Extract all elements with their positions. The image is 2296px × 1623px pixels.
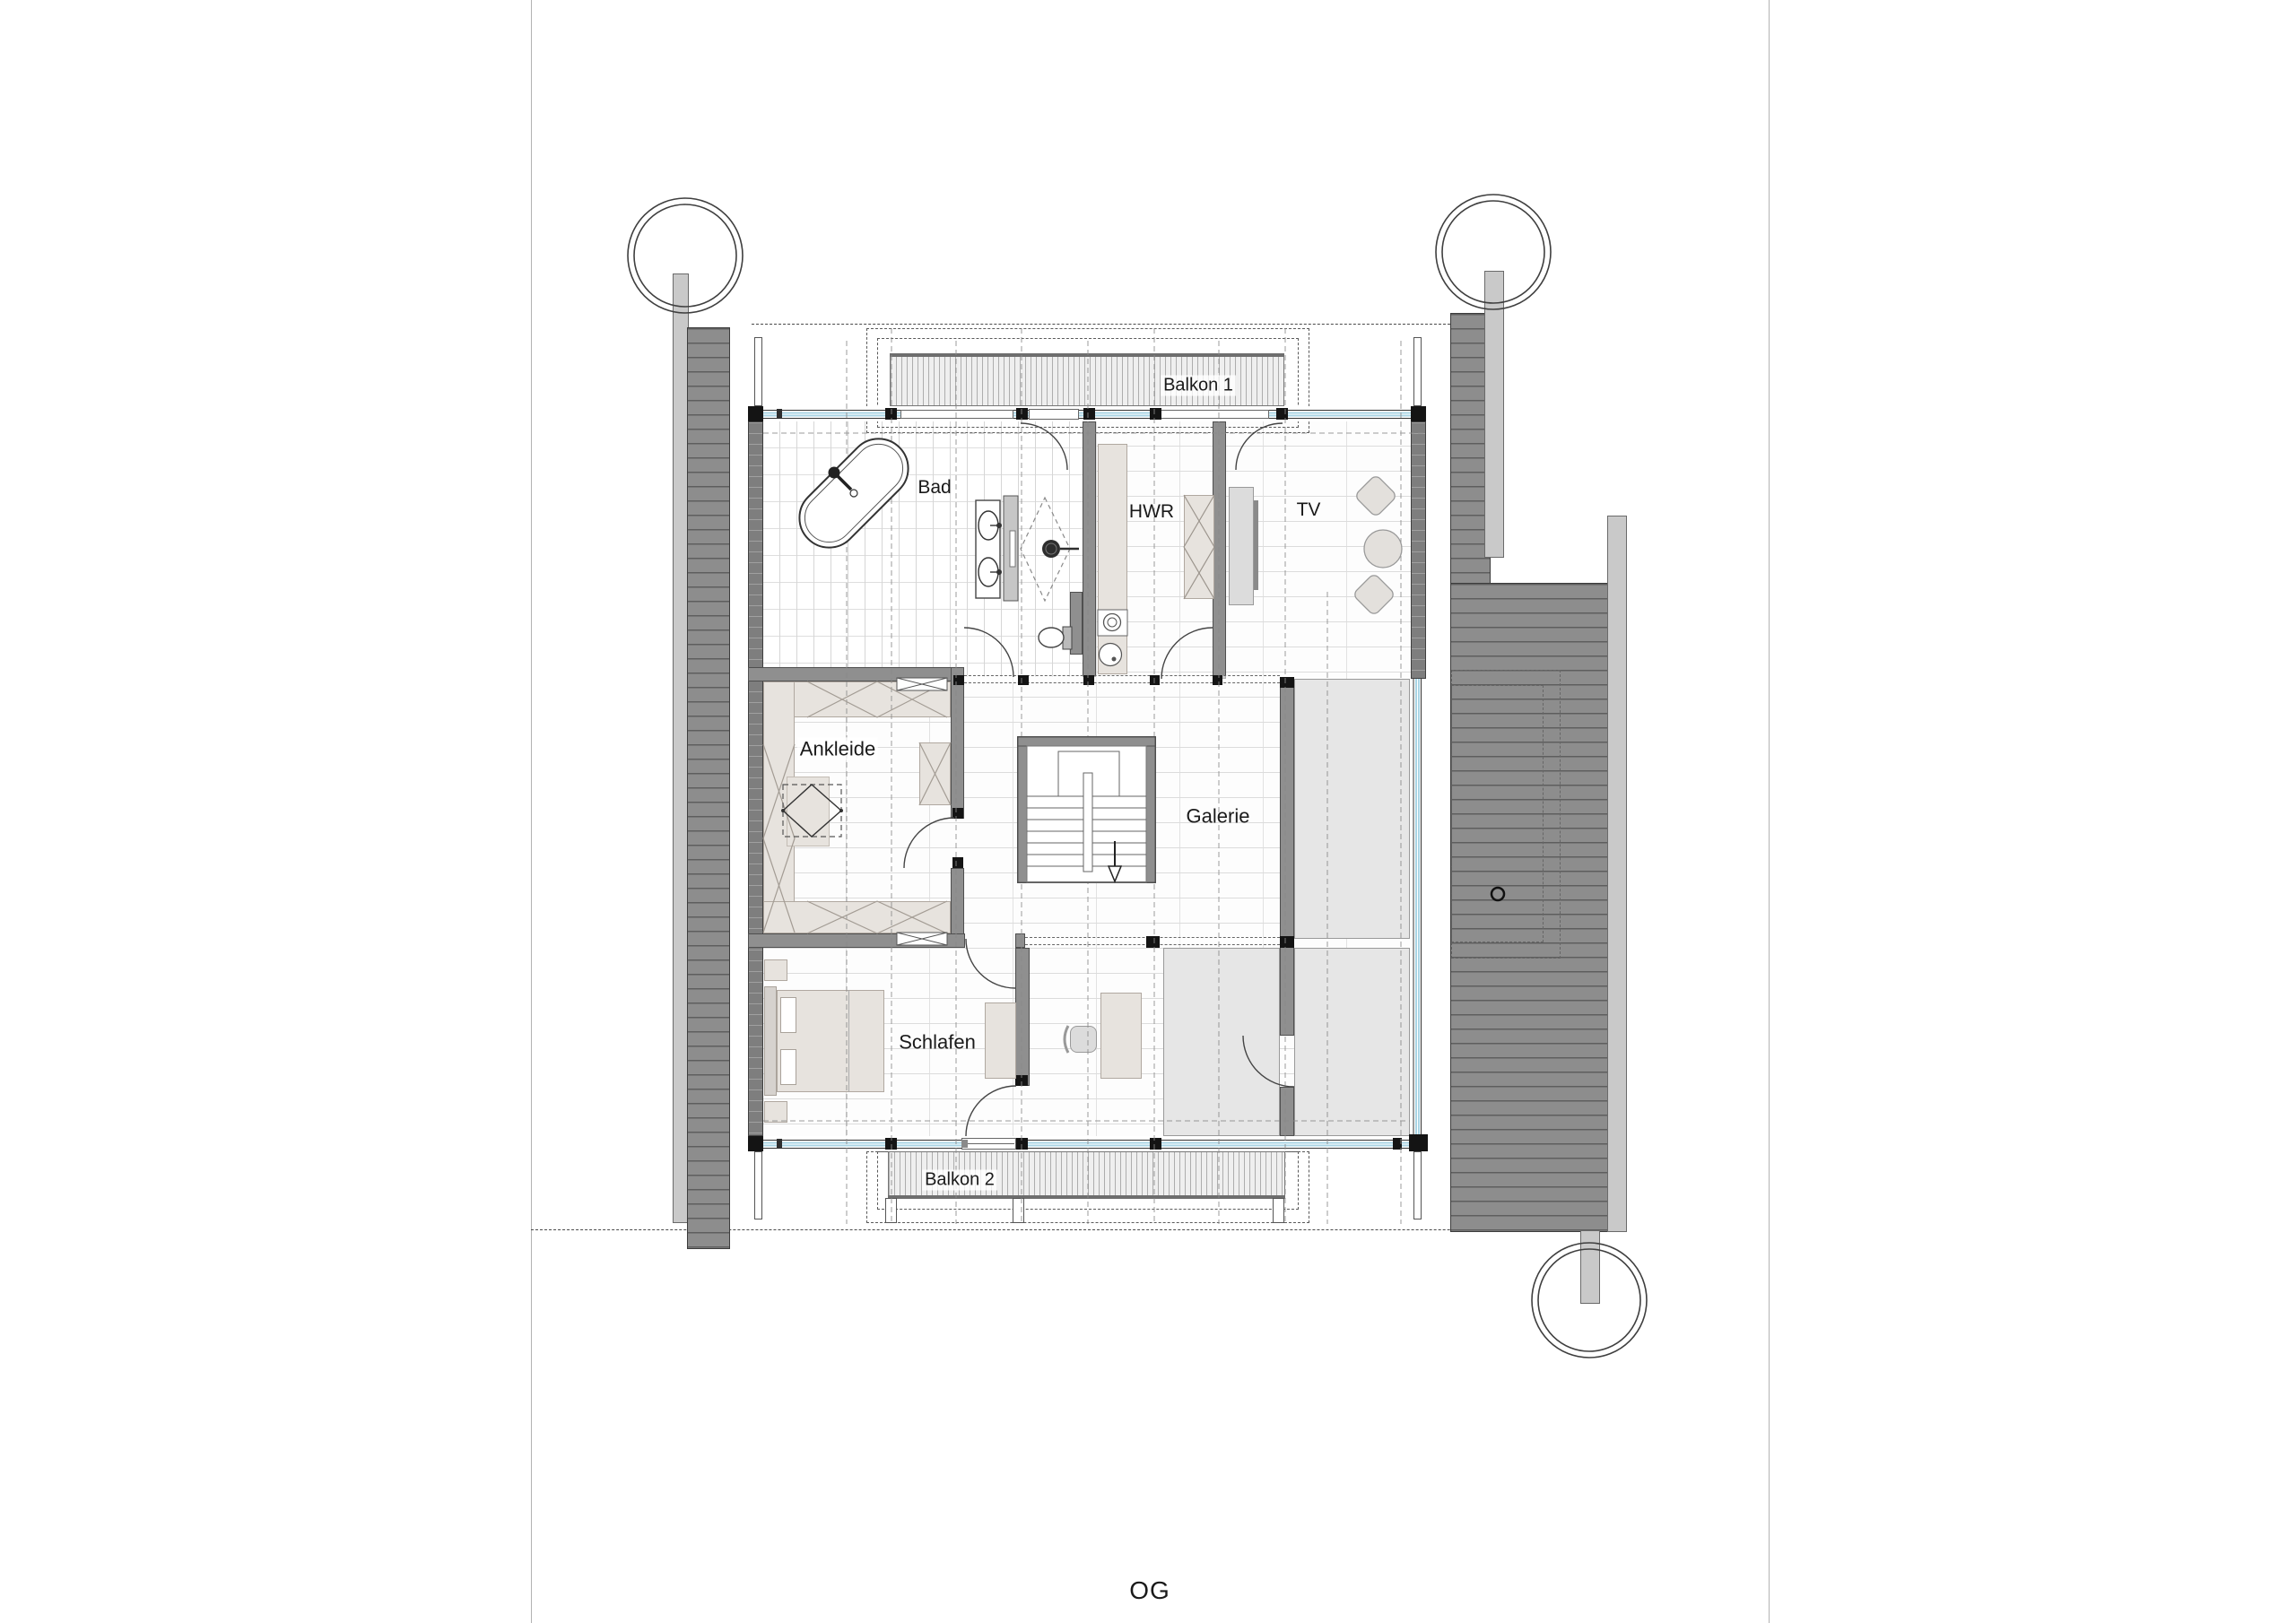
- window-north-2: [1160, 410, 1269, 419]
- hwr-cabinet: [1184, 495, 1214, 599]
- label-balkon2: Balkon 2: [922, 1170, 997, 1191]
- post-gallery-1: [953, 675, 964, 685]
- site-boundary-left: [531, 0, 532, 1623]
- wall-ankleide-east-b: [951, 868, 964, 939]
- post-ankleide-door-2: [952, 857, 963, 868]
- schlafen-wardrobe: [985, 1002, 1016, 1079]
- nightstand-2: [764, 1101, 787, 1123]
- ankleide-wardrobe-east: [919, 742, 951, 805]
- ankleide-island: [787, 777, 830, 846]
- ankleide-wardrobe-south: [763, 901, 951, 933]
- balkon2-post-1: [885, 1198, 897, 1223]
- balkon2-post-3: [1273, 1198, 1284, 1223]
- post-gallery-4: [1150, 675, 1160, 685]
- desk: [1100, 993, 1142, 1079]
- tv-lowboard: [1229, 487, 1254, 605]
- void-area-east: [1294, 679, 1410, 939]
- label-galerie: Galerie: [1184, 804, 1253, 827]
- floor-title: OG: [1126, 1576, 1173, 1605]
- post-nw-corner: [748, 406, 763, 421]
- canopy-post-sw: [754, 1151, 762, 1219]
- wall-ankleide-east-a: [951, 667, 964, 819]
- post-schlafen-door: [1015, 1075, 1028, 1086]
- void-area-south-east: [1294, 948, 1410, 1136]
- room-bad-floor: [763, 421, 1083, 677]
- wall-east-upper: [1411, 421, 1426, 679]
- label-schlafen: Schlafen: [896, 1030, 978, 1053]
- hwr-counter: [1098, 444, 1127, 674]
- post-rail-2: [1280, 936, 1294, 948]
- wall-wc-partition: [1070, 592, 1083, 655]
- roof-overhang-dashed-top: [752, 324, 1450, 325]
- post-se-corner: [1409, 1134, 1428, 1151]
- sliding-door-handle: [961, 1140, 968, 1148]
- roof-opening-dashed-inner: [1451, 685, 1544, 942]
- pillow-2: [780, 1049, 796, 1085]
- roof-edge-right: [1607, 516, 1627, 1232]
- wall-schlafen-north-a: [748, 933, 965, 948]
- floor-plan-page: Balkon 1 Bad HWR TV Ankleide Galerie Sch…: [0, 0, 2296, 1623]
- wall-galerie-east-a: [1280, 679, 1294, 1036]
- post-gallery-5: [1213, 675, 1222, 685]
- galerie-open-edge-north: [964, 675, 1280, 683]
- balkon2-rail: [888, 1195, 1285, 1199]
- window-mullion-north: [777, 409, 782, 419]
- post-north-3: [1083, 408, 1095, 420]
- void-area-south-west: [1163, 948, 1280, 1136]
- post-south-3: [1150, 1138, 1161, 1150]
- post-north-4: [1150, 408, 1161, 420]
- label-hwr: HWR: [1126, 501, 1177, 523]
- wall-schlafen-north-b: [1015, 933, 1025, 948]
- pillow-1: [780, 997, 796, 1033]
- wall-ankleide-north: [748, 667, 964, 681]
- balkon1-rail: [890, 353, 1284, 357]
- post-gallery-2: [1018, 675, 1029, 685]
- window-mullion-south: [777, 1139, 782, 1149]
- wall-schlafen-east: [1015, 948, 1030, 1086]
- post-south-1: [885, 1138, 897, 1150]
- post-ne-corner: [1411, 406, 1426, 421]
- wall-west: [748, 421, 763, 1136]
- balkon2-post-2: [1013, 1198, 1024, 1223]
- wall-galerie-east-b: [1280, 1087, 1294, 1136]
- site-boundary-right: [1769, 0, 1770, 1623]
- post-ankleide-door-1: [952, 808, 963, 819]
- bed-headboard: [764, 986, 777, 1096]
- post-south-2: [1016, 1138, 1028, 1150]
- post-south-4: [1393, 1138, 1402, 1150]
- tv-screen: [1254, 500, 1258, 590]
- canopy-post-ne: [1413, 337, 1422, 406]
- canopy-post-se: [1413, 1151, 1422, 1219]
- bed-blanket-line: [848, 990, 849, 1092]
- window-north-1: [900, 410, 1013, 419]
- label-ankleide: Ankleide: [797, 737, 878, 759]
- desk-chair: [1070, 1026, 1097, 1053]
- label-bad: Bad: [915, 477, 953, 499]
- pergola-post-bottom-right: [1580, 1230, 1600, 1304]
- post-gallery-3: [1083, 675, 1094, 685]
- window-band-south: [748, 1136, 1426, 1151]
- post-north-2: [1016, 408, 1028, 420]
- window-band-east: [1410, 679, 1424, 1136]
- post-rail-1: [1146, 936, 1160, 948]
- nightstand-1: [764, 959, 787, 981]
- pergola-post-top-right: [1484, 271, 1504, 558]
- post-north-5: [1276, 408, 1288, 420]
- canopy-post-nw: [754, 337, 762, 406]
- post-gallery-6: [1280, 677, 1294, 688]
- label-tv: TV: [1294, 499, 1324, 521]
- wall-hwr-tv: [1213, 421, 1226, 679]
- pergola-wall-left: [687, 327, 730, 1249]
- wall-bad-hwr: [1083, 421, 1096, 677]
- post-north-1: [885, 408, 897, 420]
- label-balkon1: Balkon 1: [1161, 376, 1236, 396]
- balcony-window-north: [1029, 409, 1079, 420]
- sliding-door-track: [963, 1143, 1014, 1144]
- post-sw-corner: [748, 1136, 763, 1151]
